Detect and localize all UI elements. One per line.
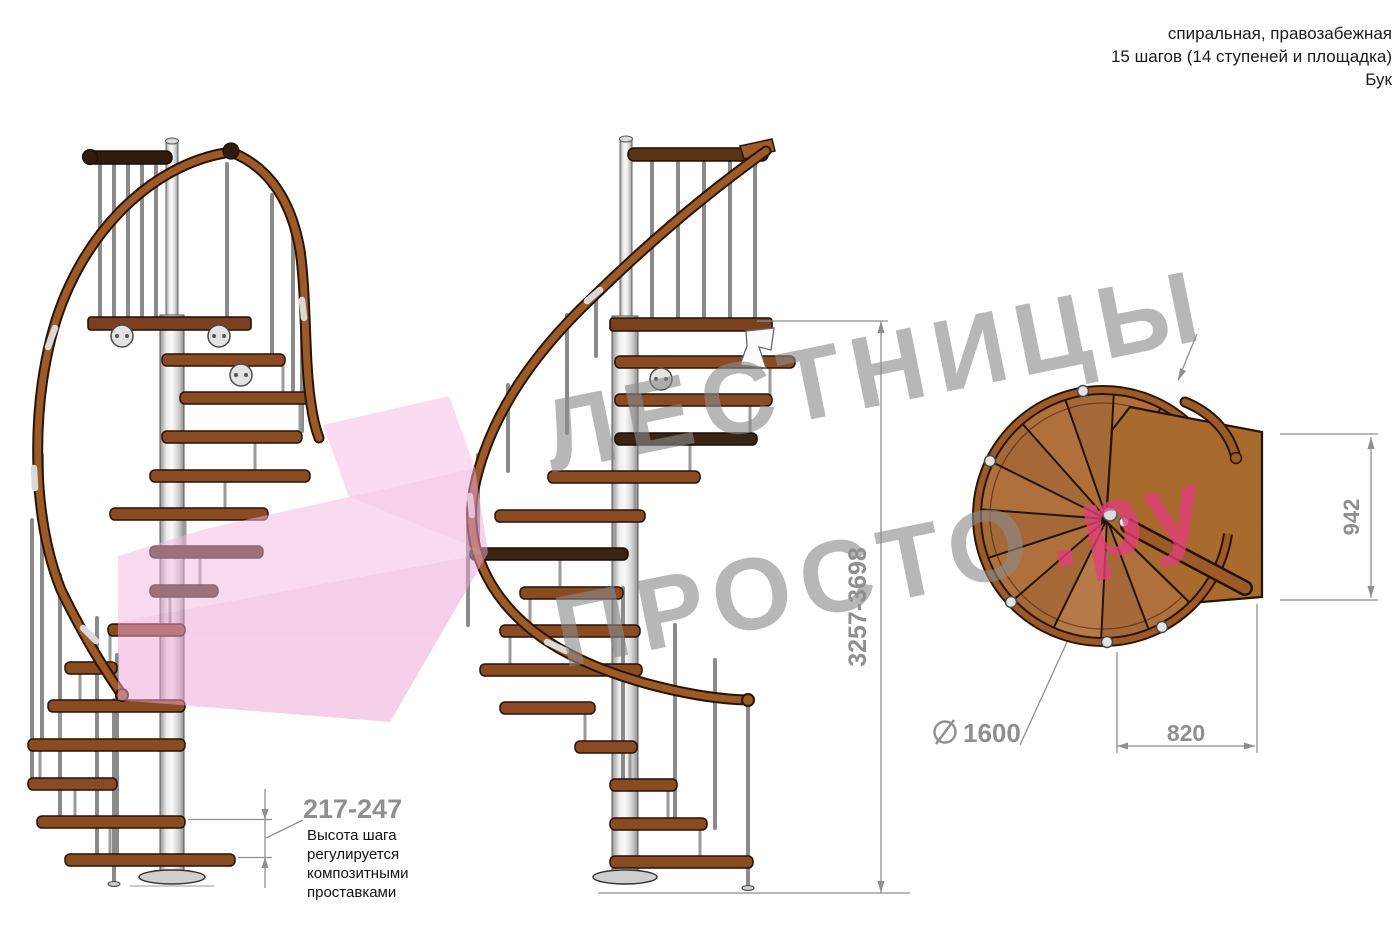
- title-line-steps: 15 шагов (14 ступеней и площадка): [1111, 45, 1392, 68]
- step-height-value: 217-247: [303, 794, 402, 824]
- dimension-diameter: 1600: [935, 642, 1068, 748]
- base-flange: [593, 870, 657, 884]
- passage-width-value: 820: [1167, 720, 1205, 746]
- title-line-type: спиральная, правозабежная: [1111, 22, 1392, 45]
- staircase-side-view-front: [468, 136, 795, 891]
- drawing-page: ЛЕСТНИЦЫ ПРОСТО .ру 217-247 3257-3698: [0, 0, 1400, 939]
- staircase-technical-drawing: ЛЕСТНИЦЫ ПРОСТО .ру 217-247 3257-3698: [0, 0, 1400, 939]
- base-flange: [130, 870, 214, 886]
- total-height-value: 3257-3698: [844, 547, 872, 667]
- staircase-side-view-left: [28, 138, 319, 887]
- title-block: спиральная, правозабежная 15 шагов (14 с…: [1111, 22, 1392, 91]
- diameter-icon: [935, 720, 956, 744]
- landing-width-value: 942: [1339, 499, 1364, 536]
- title-line-material: Бук: [1111, 68, 1392, 91]
- dimension-landing-width: 942: [1280, 434, 1378, 600]
- step-height-note: Высота шага регулируется композитными пр…: [307, 826, 409, 902]
- diameter-value: 1600: [963, 718, 1021, 748]
